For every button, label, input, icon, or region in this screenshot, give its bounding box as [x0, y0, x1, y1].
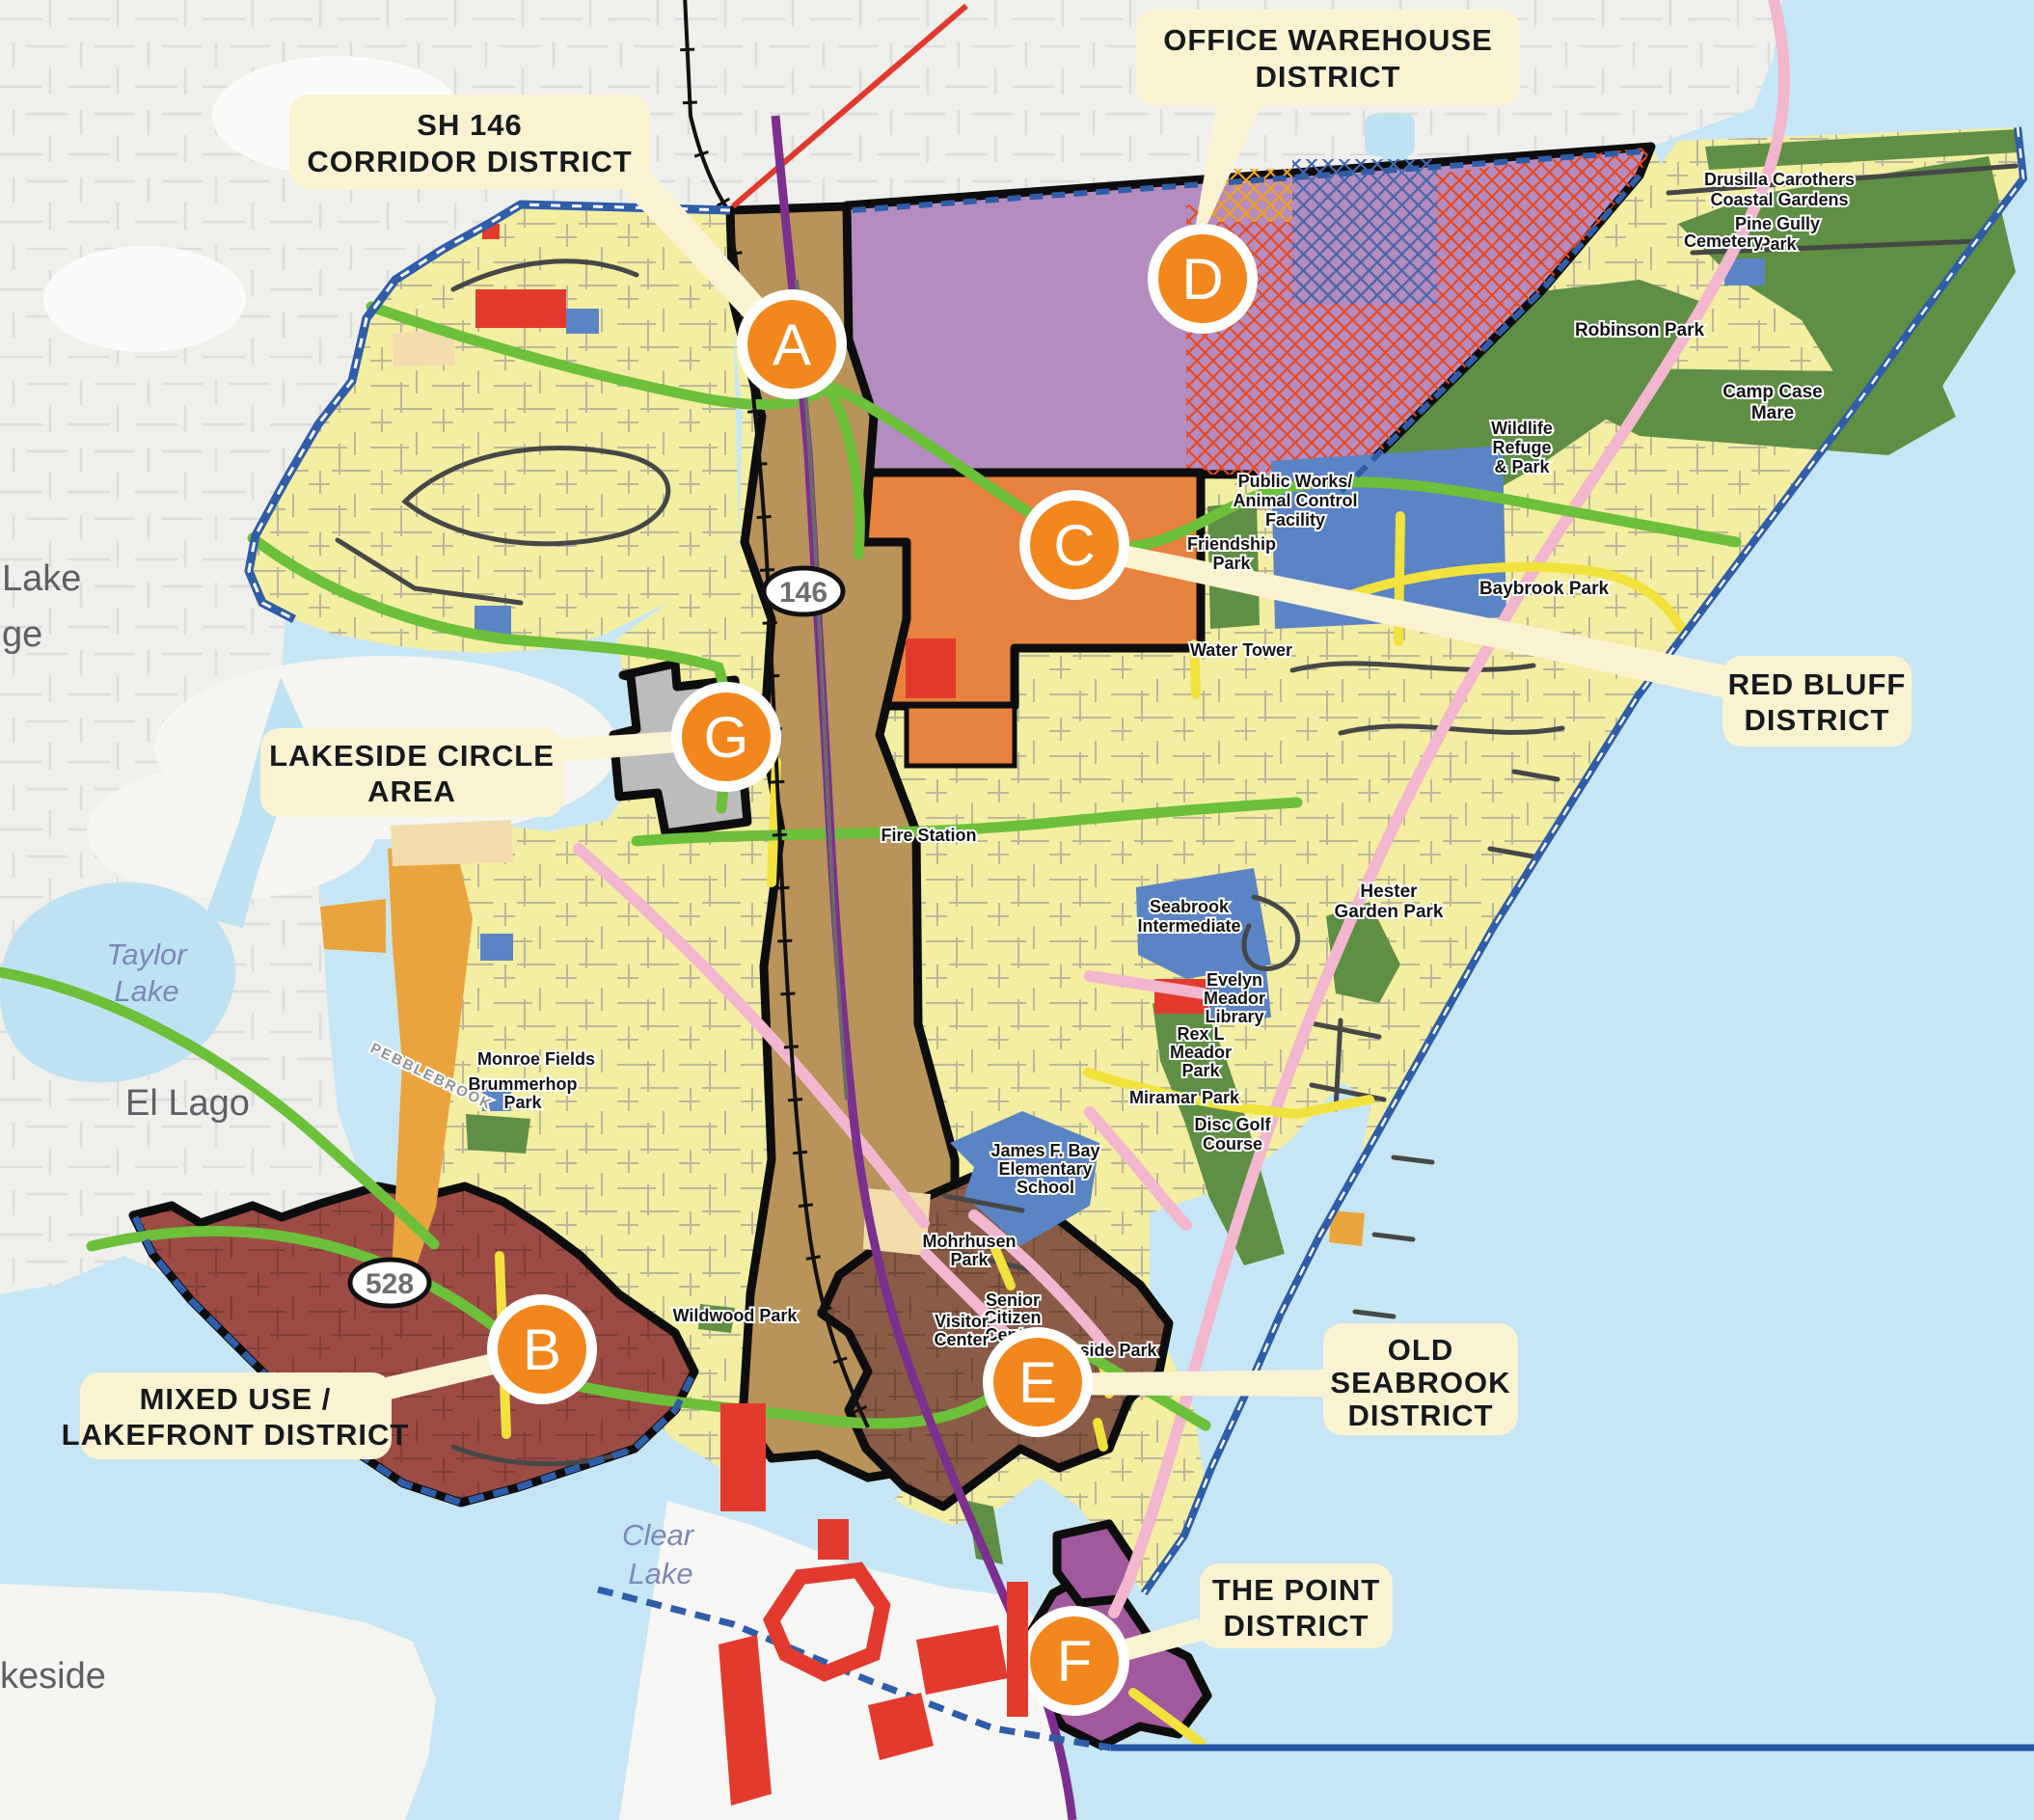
label-visitor-center: VisitorCenter	[934, 1312, 989, 1349]
marker-e: E	[983, 1327, 1093, 1437]
sh146-shield-number: 146	[779, 577, 827, 609]
marker-d: D	[1148, 224, 1258, 334]
label-wildwood-park: Wildwood Park	[673, 1306, 799, 1325]
marker-f: F	[1019, 1606, 1129, 1716]
label-robinson-park: Robinson Park	[1575, 320, 1705, 340]
blue-site	[566, 309, 599, 334]
label-evelyn-meador-library: EvelynMeadorLibrary	[1204, 970, 1265, 1026]
sh528-shield-number: 528	[366, 1268, 414, 1300]
marker-b: B	[487, 1294, 597, 1404]
marina-red-block	[720, 1403, 766, 1511]
label-drusilla-carothers: Drusilla CarothersCoastal Gardens	[1704, 170, 1855, 209]
label-water-tower: Water Tower	[1190, 640, 1292, 660]
label-el-lago: El Lago	[125, 1083, 250, 1124]
label-seabrook-intermediate: SeabrookIntermediate	[1137, 897, 1240, 936]
blue-site	[480, 934, 513, 961]
red-bluff-extension	[907, 706, 1015, 766]
seabrook-district-map: Drusilla CarothersCoastal Gardens Pine G…	[0, 0, 2034, 1820]
label-disc-golf-course: Disc GolfCourse	[1194, 1115, 1271, 1154]
marker-a-letter: A	[773, 312, 811, 377]
marker-d-letter: D	[1181, 247, 1223, 312]
marker-f-letter: F	[1057, 1629, 1093, 1694]
label-wildlife-refuge: WildlifeRefuge& Park	[1491, 419, 1553, 476]
red-block	[906, 638, 956, 698]
red-block	[475, 289, 566, 328]
map-canvas: Drusilla CarothersCoastal Gardens Pine G…	[0, 0, 2034, 1820]
marker-b-letter: B	[523, 1317, 561, 1382]
label-baybrook-park: Baybrook Park	[1479, 579, 1610, 599]
label-miramar-park: Miramar Park	[1129, 1088, 1240, 1107]
marker-g-letter: G	[704, 705, 749, 770]
marina-red-strip	[1007, 1582, 1028, 1717]
office-warehouse-bluehatch	[1292, 159, 1437, 304]
marker-c: C	[1019, 490, 1129, 600]
marina-red-block	[818, 1519, 849, 1560]
marker-e-letter: E	[1018, 1350, 1057, 1415]
label-cemetery: Cemetery	[1684, 231, 1763, 251]
pond	[1365, 114, 1415, 156]
label-fire-station: Fire Station	[881, 826, 976, 845]
monroe-fields-green	[466, 1114, 530, 1154]
marker-c-letter: C	[1053, 513, 1095, 578]
label-lakeside-partial: keside	[0, 1656, 106, 1697]
marker-a: A	[737, 289, 847, 399]
land-patch	[43, 246, 246, 352]
marker-g: G	[671, 682, 781, 792]
wheat-block	[391, 820, 513, 866]
orange-block	[320, 899, 386, 953]
label-monroe-fields: Monroe Fields	[477, 1049, 595, 1069]
